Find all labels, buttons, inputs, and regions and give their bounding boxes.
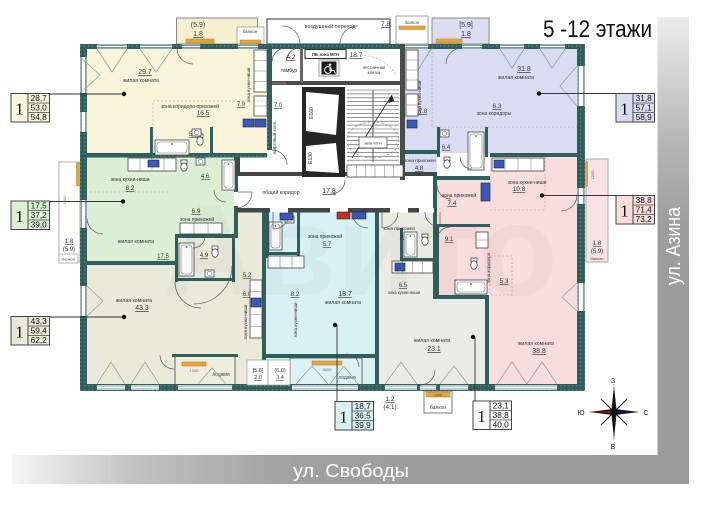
svg-text:39,9: 39,9 bbox=[355, 420, 372, 430]
svg-text:43.3: 43.3 bbox=[135, 305, 149, 312]
svg-text:31.8: 31.8 bbox=[517, 66, 531, 73]
svg-text:ПБ зона МГН: ПБ зона МГН bbox=[312, 52, 339, 57]
svg-text:балкон: балкон bbox=[591, 256, 604, 261]
svg-text:балкон: балкон bbox=[243, 29, 258, 34]
svg-text:28,7: 28,7 bbox=[31, 93, 48, 103]
svg-text:(5.9): (5.9) bbox=[63, 247, 75, 253]
svg-text:7.8: 7.8 bbox=[419, 109, 428, 115]
svg-text:1.2: 1.2 bbox=[385, 396, 394, 403]
svg-text:1: 1 bbox=[15, 100, 24, 119]
svg-text:Авито: Авито bbox=[162, 177, 557, 323]
svg-text:1.8: 1.8 bbox=[593, 241, 602, 247]
svg-text:43,3: 43,3 bbox=[31, 316, 48, 326]
svg-text:ул. Азина: ул. Азина bbox=[663, 206, 685, 285]
svg-text:29.7: 29.7 bbox=[138, 69, 152, 76]
svg-text:17,5: 17,5 bbox=[31, 201, 48, 211]
svg-text:1: 1 bbox=[15, 323, 24, 342]
svg-text:жилая комната: жилая комната bbox=[116, 298, 152, 304]
svg-text:жилая комната: жилая комната bbox=[123, 78, 159, 84]
svg-text:Е160: Е160 bbox=[309, 107, 315, 119]
svg-text:1: 1 bbox=[620, 100, 629, 119]
svg-text:8.2: 8.2 bbox=[125, 185, 134, 192]
svg-text:58,9: 58,9 bbox=[636, 112, 653, 122]
svg-text:жилая комната: жилая комната bbox=[118, 239, 154, 245]
svg-text:53,0: 53,0 bbox=[31, 103, 48, 113]
svg-text:1200: 1200 bbox=[434, 394, 442, 398]
svg-text:З: З bbox=[611, 378, 615, 385]
svg-text:37,2: 37,2 bbox=[31, 210, 48, 220]
svg-text:зона кухни-ниши: зона кухни-ниши bbox=[246, 67, 251, 102]
svg-text:1200: 1200 bbox=[190, 368, 200, 373]
svg-text:3000: 3000 bbox=[323, 367, 333, 372]
svg-text:жилая комната: жилая комната bbox=[498, 75, 534, 81]
svg-text:36,5: 36,5 bbox=[355, 411, 372, 421]
svg-text:зона коридоры: зона коридоры bbox=[477, 111, 512, 117]
svg-text:2.0: 2.0 bbox=[254, 375, 262, 381]
svg-text:18,7: 18,7 bbox=[355, 401, 372, 411]
svg-text:31,8: 31,8 bbox=[636, 93, 653, 103]
svg-text:1200: 1200 bbox=[590, 170, 595, 180]
svg-text:балкон: балкон bbox=[405, 20, 420, 25]
svg-text:балкон: балкон bbox=[430, 405, 446, 411]
svg-text:1.8: 1.8 bbox=[193, 31, 203, 38]
svg-text:(4.1): (4.1) bbox=[383, 404, 396, 411]
svg-text:59,4: 59,4 bbox=[31, 326, 48, 336]
svg-text:23,1: 23,1 bbox=[493, 401, 510, 411]
svg-text:16.5: 16.5 bbox=[197, 110, 210, 117]
svg-text:балкон: балкон bbox=[62, 257, 75, 262]
svg-text:1: 1 bbox=[477, 407, 486, 426]
svg-text:жилая комната: жилая комната bbox=[518, 341, 554, 347]
svg-text:лифтовый холл: лифтовый холл bbox=[271, 121, 277, 154]
svg-text:7.8: 7.8 bbox=[381, 21, 390, 28]
svg-text:38,8: 38,8 bbox=[636, 195, 653, 205]
svg-text:57,1: 57,1 bbox=[636, 103, 653, 113]
svg-text:(5.9): (5.9) bbox=[591, 249, 603, 255]
svg-text:В: В bbox=[611, 444, 616, 451]
svg-text:1.8: 1.8 bbox=[461, 31, 471, 38]
svg-text:71,4: 71,4 bbox=[636, 205, 653, 215]
svg-text:38,8: 38,8 bbox=[493, 410, 510, 420]
svg-text:73,2: 73,2 bbox=[636, 214, 653, 224]
svg-text:[5.9]: [5.9] bbox=[459, 22, 473, 29]
svg-text:зона прихожей: зона прихожей bbox=[404, 157, 436, 163]
svg-text:38.8: 38.8 bbox=[532, 348, 546, 355]
svg-text:тамбур: тамбур bbox=[281, 68, 298, 74]
svg-text:жилая комната: жилая комната bbox=[414, 338, 450, 344]
svg-text:1200: 1200 bbox=[62, 195, 67, 205]
svg-text:6.4: 6.4 bbox=[442, 145, 451, 151]
svg-text:1.8: 1.8 bbox=[65, 239, 74, 245]
svg-text:[5.6]: [5.6] bbox=[253, 368, 264, 374]
svg-text:62,2: 62,2 bbox=[31, 335, 48, 345]
svg-text:эвак МГН: эвак МГН bbox=[364, 141, 382, 146]
svg-text:1: 1 bbox=[15, 207, 24, 226]
svg-text:(6.0): (6.0) bbox=[274, 368, 285, 374]
svg-text:7.0: 7.0 bbox=[274, 103, 283, 109]
svg-text:4.8: 4.8 bbox=[415, 166, 424, 172]
svg-text:(5.9): (5.9) bbox=[191, 22, 205, 29]
svg-text:1: 1 bbox=[620, 202, 629, 221]
svg-text:С: С bbox=[643, 410, 648, 417]
svg-text:7.9: 7.9 bbox=[237, 102, 246, 108]
svg-text:6.3: 6.3 bbox=[492, 103, 501, 110]
svg-text:23.1: 23.1 bbox=[427, 346, 441, 353]
svg-text:3.4: 3.4 bbox=[276, 375, 284, 381]
svg-text:Е130: Е130 bbox=[308, 152, 314, 164]
svg-text:клетка: клетка bbox=[368, 70, 381, 75]
svg-text:Ю: Ю bbox=[577, 410, 584, 417]
svg-text:54,8: 54,8 bbox=[31, 112, 48, 122]
svg-text:лоджия: лоджия bbox=[212, 372, 230, 378]
svg-text:40,0: 40,0 bbox=[493, 420, 510, 430]
svg-text:зона коридора-прихожей: зона коридора-прихожей bbox=[161, 103, 219, 110]
svg-text:1: 1 bbox=[339, 408, 348, 427]
svg-text:ул. Свободы: ул. Свободы bbox=[293, 461, 409, 481]
svg-text:39,0: 39,0 bbox=[31, 220, 48, 230]
svg-text:5 -12 этажи: 5 -12 этажи bbox=[543, 16, 652, 43]
svg-text:зона кухни-ниши: зона кухни-ниши bbox=[111, 177, 150, 183]
